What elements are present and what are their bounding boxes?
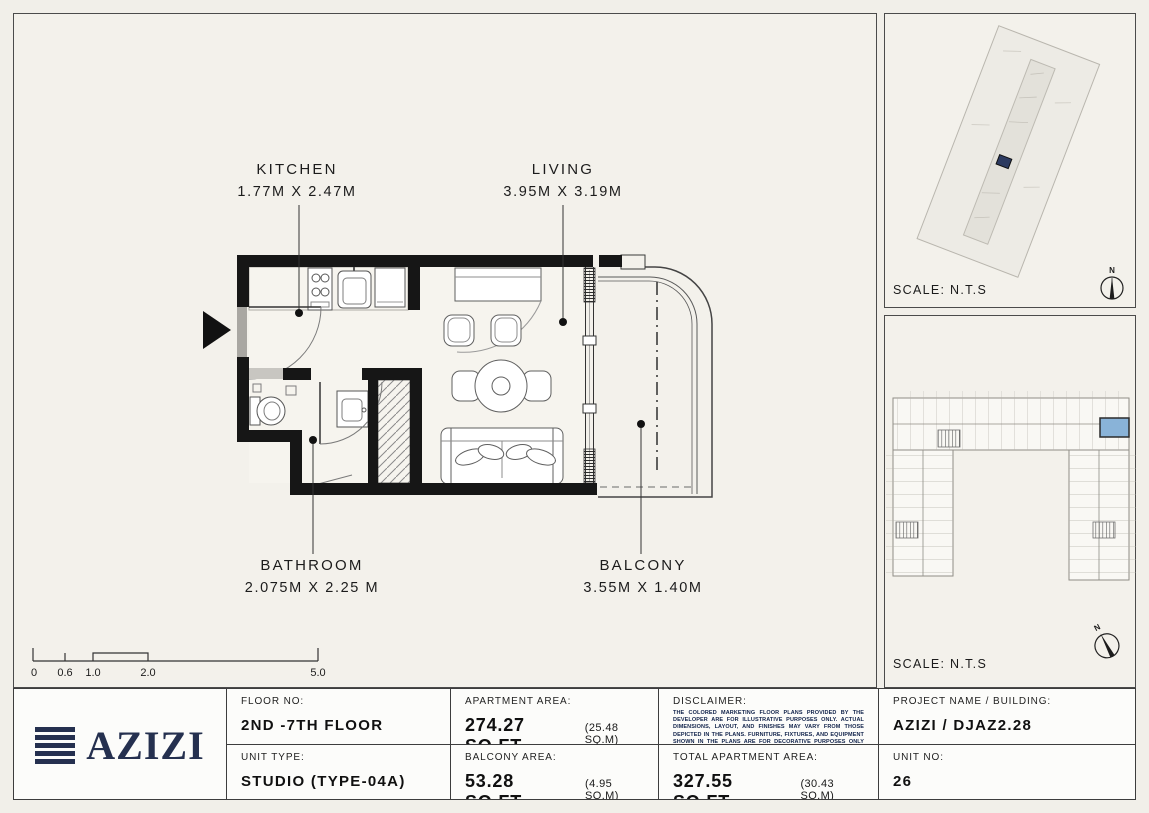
balcony-label: BALCONY 3.55M X 1.40M	[533, 557, 753, 596]
room-dimensions: 2.075M X 2.25 M	[202, 580, 422, 596]
unit-type-label: UNIT TYPE:	[241, 752, 436, 763]
total-area-label: TOTAL APARTMENT AREA:	[673, 752, 864, 763]
floor-no-cell: FLOOR NO: 2ND -7TH FLOOR	[226, 689, 450, 744]
azizi-logo-wordmark: AZIZI	[86, 726, 204, 766]
disclaimer-cell: DISCLAIMER: THE COLORED MARKETING FLOOR …	[658, 689, 878, 744]
apartment-area-cell: APARTMENT AREA: 274.27 SQ.FT. (25.48 SQ.…	[450, 689, 658, 744]
room-dimensions: 3.95M X 3.19M	[453, 184, 673, 200]
room-dimensions: 3.55M X 1.40M	[533, 580, 753, 596]
project-name-cell: PROJECT NAME / BUILDING: AZIZI / DJAZ2.2…	[878, 689, 1135, 744]
project-name-value: AZIZI / DJAZ2.28	[893, 717, 1121, 734]
unit-type-value: STUDIO (TYPE-04A)	[241, 773, 436, 790]
project-name-label: PROJECT NAME / BUILDING:	[893, 696, 1121, 707]
kitchen-label: KITCHEN 1.77M X 2.47M	[187, 161, 407, 200]
apartment-area-value: 274.27 SQ.FT.	[465, 715, 571, 744]
disclaimer-label: DISCLAIMER:	[673, 696, 864, 707]
total-area-metric: (30.43 SQ.M)	[800, 778, 864, 799]
azizi-logo: AZIZI	[14, 689, 226, 799]
disclaimer-text: THE COLORED MARKETING FLOOR PLANS PROVID…	[673, 710, 864, 744]
bathroom-label: BATHROOM 2.075M X 2.25 M	[202, 557, 422, 596]
unit-no-cell: UNIT NO: 26	[878, 744, 1135, 799]
key-plan-panel	[884, 315, 1136, 688]
balcony-area-cell: BALCONY AREA: 53.28 SQ.FT. (4.95 SQ.M)	[450, 744, 658, 799]
unit-no-value: 26	[893, 773, 1121, 790]
floor-plan-sheet: 0 0.6 1.0 2.0 5.0 N	[0, 0, 1149, 813]
unit-no-label: UNIT NO:	[893, 752, 1121, 763]
apartment-area-label: APARTMENT AREA:	[465, 696, 644, 707]
room-dimensions: 1.77M X 2.47M	[187, 184, 407, 200]
title-block: AZIZI FLOOR NO: 2ND -7TH FLOOR APARTMENT…	[13, 688, 1136, 800]
room-name: BALCONY	[533, 557, 753, 574]
site-plan-panel	[884, 13, 1136, 308]
floor-no-value: 2ND -7TH FLOOR	[241, 717, 436, 734]
balcony-area-label: BALCONY AREA:	[465, 752, 644, 763]
room-name: LIVING	[453, 161, 673, 178]
total-area-value: 327.55 SQ.FT.	[673, 771, 786, 799]
total-area-cell: TOTAL APARTMENT AREA: 327.55 SQ.FT. (30.…	[658, 744, 878, 799]
azizi-logo-bars-icon	[35, 727, 75, 764]
balcony-area-value: 53.28 SQ.FT.	[465, 771, 571, 799]
unit-type-cell: UNIT TYPE: STUDIO (TYPE-04A)	[226, 744, 450, 799]
floor-no-label: FLOOR NO:	[241, 696, 436, 707]
living-label: LIVING 3.95M X 3.19M	[453, 161, 673, 200]
key-scale-label: SCALE: N.T.S	[893, 657, 987, 671]
apartment-area-metric: (25.48 SQ.M)	[585, 722, 644, 744]
room-name: BATHROOM	[202, 557, 422, 574]
site-scale-label: SCALE: N.T.S	[893, 283, 987, 297]
balcony-area-metric: (4.95 SQ.M)	[585, 778, 644, 799]
room-name: KITCHEN	[187, 161, 407, 178]
